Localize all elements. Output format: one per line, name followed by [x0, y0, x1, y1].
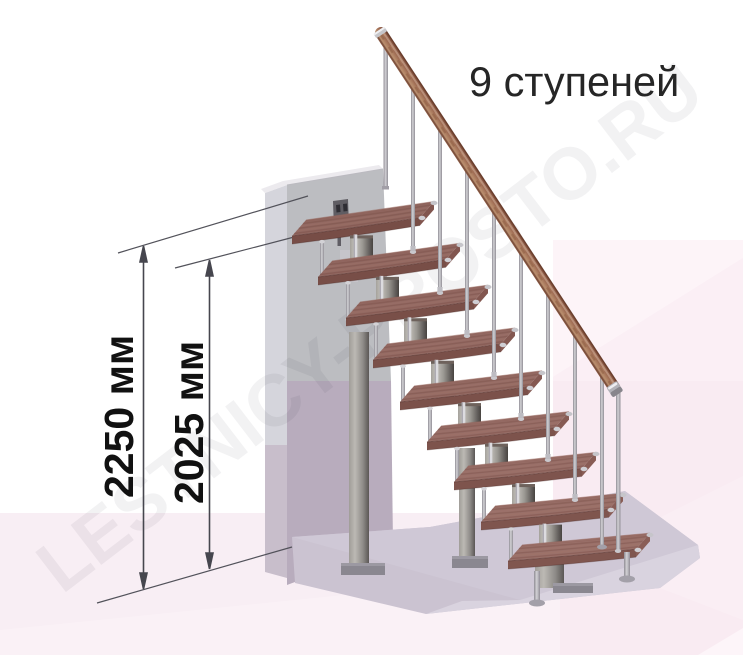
svg-text:2250 мм: 2250 мм: [96, 335, 142, 498]
svg-text:9 ступеней: 9 ступеней: [469, 58, 679, 105]
svg-text:2025 мм: 2025 мм: [166, 341, 212, 504]
